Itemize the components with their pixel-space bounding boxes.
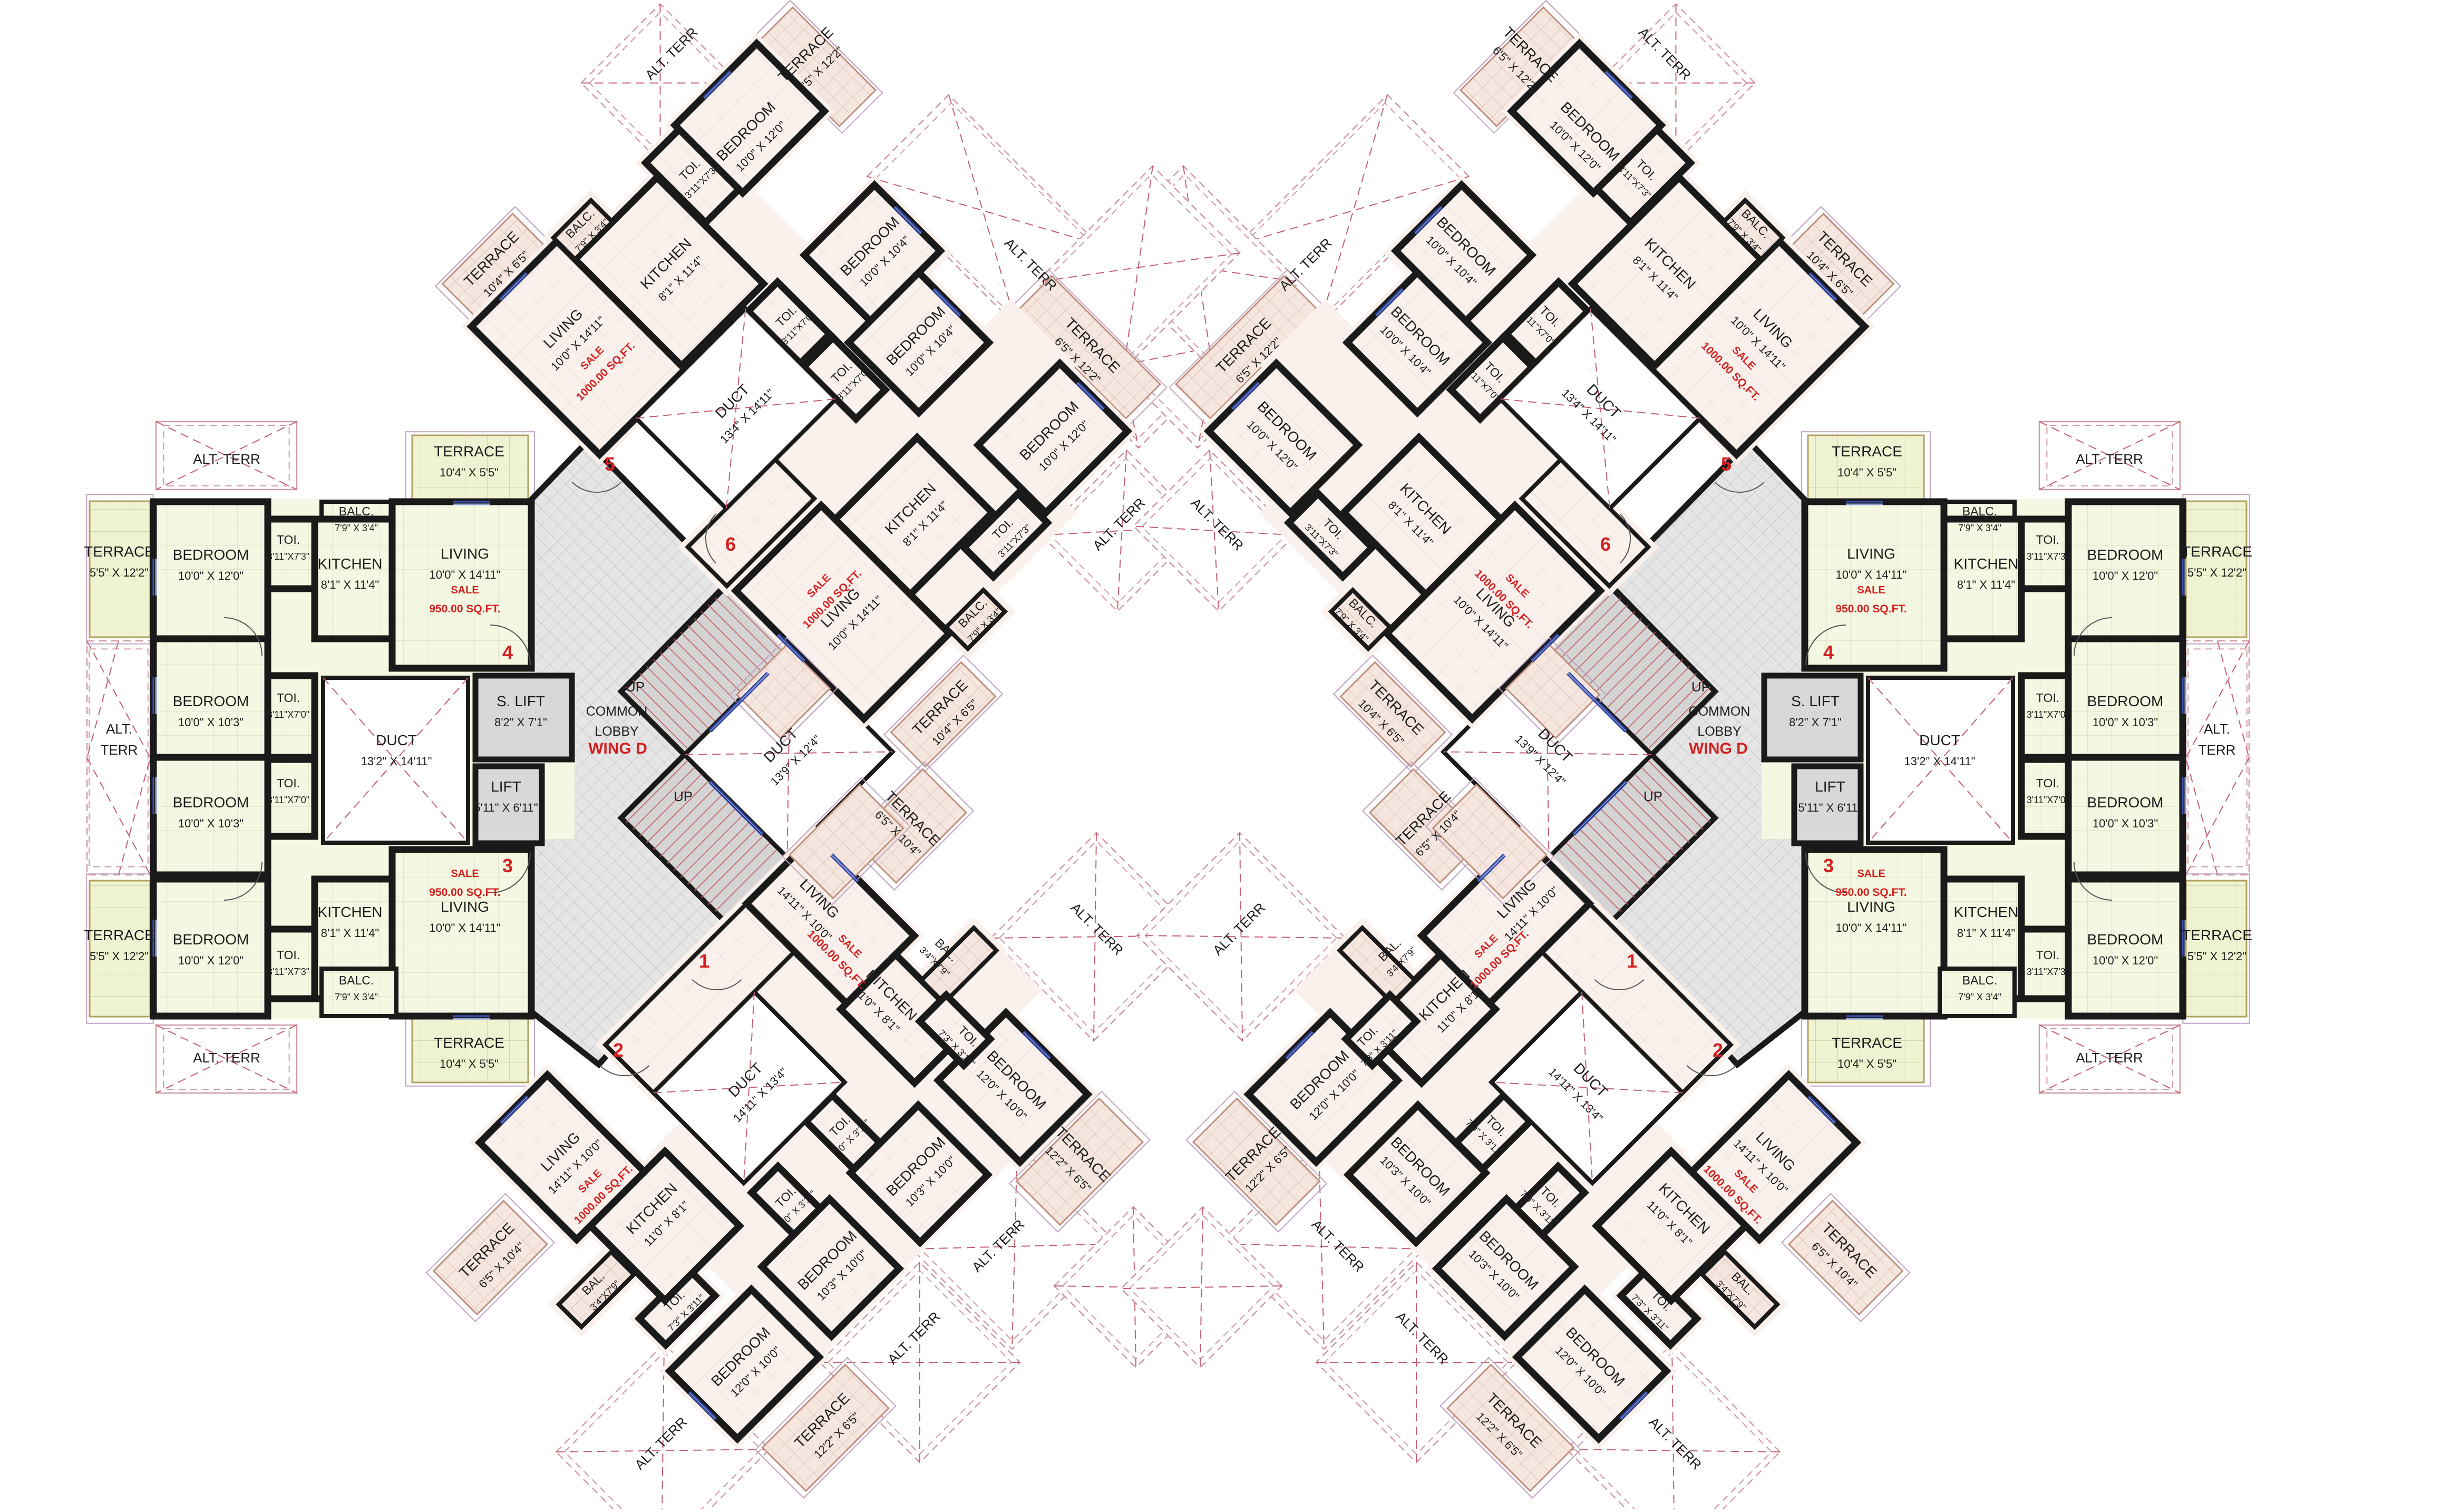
svg-text:4: 4 [502,641,513,663]
svg-text:2: 2 [613,1039,624,1061]
svg-text:1: 1 [699,950,709,972]
svg-text:ALT. TERR: ALT. TERR [2076,1050,2143,1066]
svg-text:WING D: WING D [588,740,647,757]
svg-text:3: 3 [502,855,513,876]
svg-text:ALT. TERR: ALT. TERR [193,451,260,467]
svg-text:ALT. TERR: ALT. TERR [193,1050,260,1066]
svg-text:UP: UP [674,788,693,804]
svg-text:6: 6 [725,533,736,555]
svg-text:ALT. TERR: ALT. TERR [2076,451,2143,467]
svg-text:UP: UP [626,679,645,695]
svg-text:UP: UP [1691,679,1710,695]
svg-text:UP: UP [1643,788,1662,804]
svg-text:3: 3 [1823,855,1834,876]
svg-text:2: 2 [1713,1039,1723,1061]
svg-text:5: 5 [605,453,615,475]
svg-text:1: 1 [1627,950,1637,972]
svg-text:WING D: WING D [1689,740,1748,757]
svg-text:4: 4 [1823,641,1834,663]
svg-text:5: 5 [1721,453,1732,475]
svg-text:6: 6 [1600,533,1611,555]
